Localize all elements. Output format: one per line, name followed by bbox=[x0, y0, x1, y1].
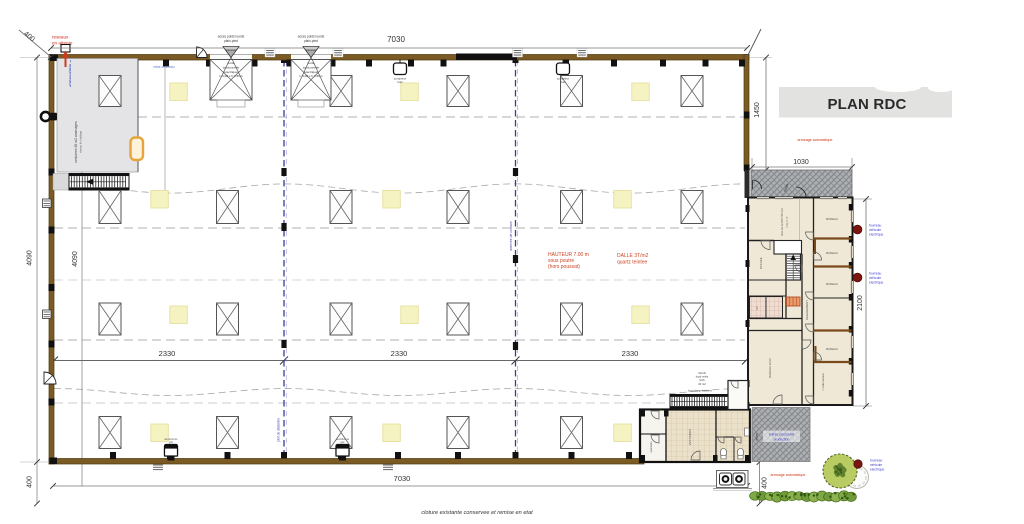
svg-text:entree personnel: entree personnel bbox=[769, 433, 795, 437]
svg-text:1450: 1450 bbox=[754, 102, 761, 118]
svg-text:acces poids lourds: acces poids lourds bbox=[298, 35, 325, 39]
svg-text:fourreau: fourreau bbox=[870, 459, 882, 463]
svg-text:quartz teintee: quartz teintee bbox=[617, 260, 648, 266]
svg-text:1030: 1030 bbox=[793, 159, 809, 166]
svg-text:electrique: electrique bbox=[224, 70, 238, 74]
svg-text:2330: 2330 bbox=[391, 349, 408, 358]
svg-text:reseaux attente: reseaux attente bbox=[68, 64, 72, 86]
svg-text:vehicule: vehicule bbox=[869, 276, 881, 280]
svg-text:sectionnelle: sectionnelle bbox=[223, 65, 240, 69]
svg-text:BUREAU: BUREAU bbox=[826, 251, 838, 255]
svg-text:porte: porte bbox=[227, 61, 234, 65]
svg-text:7030: 7030 bbox=[394, 474, 411, 483]
svg-text:reseaux: reseaux bbox=[52, 35, 69, 40]
svg-text:4090: 4090 bbox=[72, 251, 79, 267]
svg-text:arrosage automatique: arrosage automatique bbox=[771, 473, 806, 477]
svg-text:fourreau: fourreau bbox=[869, 272, 881, 276]
svg-text:7030: 7030 bbox=[387, 35, 405, 44]
svg-text:acces poids lourds: acces poids lourds bbox=[218, 35, 245, 39]
svg-text:PLAN RDC: PLAN RDC bbox=[827, 96, 906, 113]
svg-text:amenee de courant: amenee de courant bbox=[509, 221, 513, 250]
svg-text:400: 400 bbox=[27, 476, 34, 488]
svg-text:2330: 2330 bbox=[159, 349, 176, 358]
svg-text:mise a niveau: mise a niveau bbox=[154, 65, 175, 69]
svg-text:L 4,00 x h 4,50m: L 4,00 x h 4,50m bbox=[220, 74, 243, 78]
svg-text:local velos: local velos bbox=[696, 375, 709, 379]
svg-text:BUREAU 22m2: BUREAU 22m2 bbox=[768, 358, 772, 378]
svg-text:cloture existante conservee et: cloture existante conservee et remise en… bbox=[421, 510, 533, 516]
svg-text:hsfp 2.70: hsfp 2.70 bbox=[785, 216, 789, 227]
svg-text:sanitaires: sanitaires bbox=[649, 441, 653, 453]
svg-text:arrosage automatique: arrosage automatique bbox=[798, 138, 833, 142]
svg-text:L 4,00 x h 4,50m: L 4,00 x h 4,50m bbox=[300, 74, 323, 78]
svg-text:gaz: gaz bbox=[169, 441, 174, 444]
svg-text:acces: acces bbox=[755, 433, 759, 441]
svg-text:local charge batteries: local charge batteries bbox=[688, 390, 713, 393]
svg-text:sectionnelle: sectionnelle bbox=[303, 65, 320, 69]
svg-text:DALLE 3T/m2: DALLE 3T/m2 bbox=[617, 253, 649, 259]
svg-text:BUREAU: BUREAU bbox=[826, 217, 838, 221]
svg-text:joint de dilatation: joint de dilatation bbox=[277, 418, 281, 443]
svg-text:SALLE EXPO 58 m2: SALLE EXPO 58 m2 bbox=[780, 208, 784, 236]
svg-text:2100: 2100 bbox=[857, 295, 864, 311]
svg-text:vehicule: vehicule bbox=[870, 463, 882, 467]
svg-text:SAS: SAS bbox=[699, 378, 705, 382]
svg-text:4090: 4090 bbox=[27, 250, 34, 266]
svg-text:production: production bbox=[774, 438, 790, 442]
svg-text:400: 400 bbox=[22, 30, 36, 43]
svg-text:40 m2: 40 m2 bbox=[698, 382, 706, 386]
svg-text:Gaz: Gaz bbox=[397, 80, 403, 84]
svg-text:vestiaires 36 m2 amenages: vestiaires 36 m2 amenages bbox=[74, 121, 78, 163]
svg-text:2330: 2330 bbox=[622, 349, 639, 358]
svg-text:electrique: electrique bbox=[869, 233, 883, 237]
svg-text:(hors poussat): (hors poussat) bbox=[548, 264, 580, 270]
svg-text:DEGAGEMENT: DEGAGEMENT bbox=[805, 300, 809, 320]
svg-text:400: 400 bbox=[762, 477, 769, 489]
svg-text:electrique: electrique bbox=[869, 281, 883, 285]
svg-text:vehicule: vehicule bbox=[869, 228, 881, 232]
svg-text:gaz: gaz bbox=[340, 441, 345, 444]
svg-text:VESTIAIRES: VESTIAIRES bbox=[688, 429, 692, 446]
svg-text:VALID: VALID bbox=[698, 371, 706, 375]
svg-text:plain-pied: plain-pied bbox=[224, 39, 238, 43]
svg-text:☐ salle reunion: ☐ salle reunion bbox=[821, 373, 825, 391]
svg-text:ACCUEIL: ACCUEIL bbox=[759, 256, 763, 269]
svg-text:Gaz: Gaz bbox=[560, 80, 566, 84]
svg-text:BUREAU: BUREAU bbox=[826, 282, 838, 286]
svg-text:plain-pied: plain-pied bbox=[304, 39, 318, 43]
svg-text:fourreau: fourreau bbox=[869, 224, 881, 228]
svg-text:porte: porte bbox=[307, 61, 314, 65]
svg-text:BUREAU: BUREAU bbox=[826, 347, 838, 351]
svg-text:electrique: electrique bbox=[870, 468, 884, 472]
svg-text:electrique: electrique bbox=[304, 70, 318, 74]
svg-text:niveau fini dallage: niveau fini dallage bbox=[79, 130, 83, 153]
